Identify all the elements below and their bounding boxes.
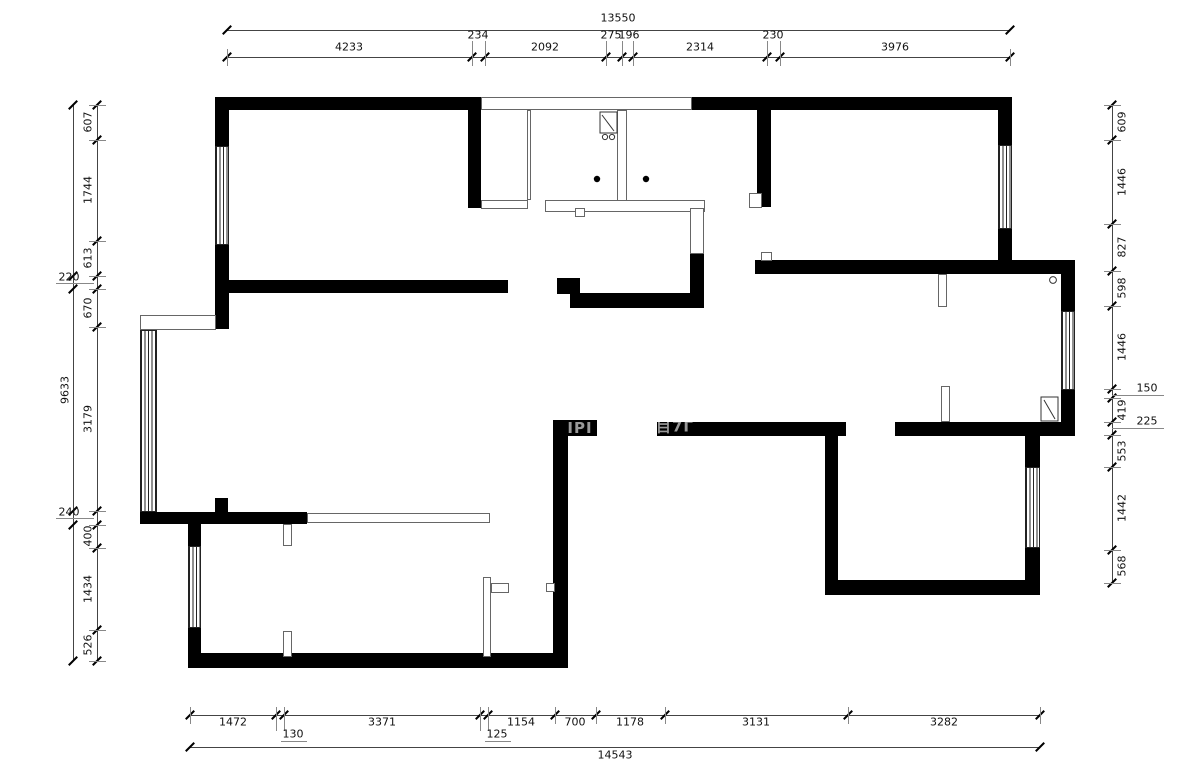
dim-label: 234 [468,30,489,41]
dim-label: 3179 [83,405,94,433]
dim-label: 125 [487,729,508,740]
dim-label: 14543 [598,750,633,761]
dim-leader [485,741,511,742]
dim-label: 2314 [686,42,714,53]
dim-line [1112,105,1113,583]
dim-extension [89,630,106,631]
dim-leader [780,41,781,56]
dim-leader [1112,428,1164,429]
dim-extension [89,289,106,290]
dim-label: 607 [83,112,94,133]
dim-extension [1104,306,1121,307]
dim-leader [622,41,623,56]
dim-extension [848,707,849,724]
watermark-fragment: 目7Γ [656,416,694,437]
dim-label: 1178 [616,717,644,728]
dim-label: 1446 [1117,168,1128,196]
dim-label: 220 [59,272,80,283]
dim-label: 1434 [83,575,94,603]
dim-extension [1104,271,1121,272]
dim-leader [472,41,473,56]
dim-leader [1112,395,1164,396]
dim-label: 225 [1137,416,1158,427]
door-stop-circle [1050,277,1057,284]
dim-extension [89,105,106,106]
dim-label: 130 [283,729,304,740]
dim-extension [1104,583,1121,584]
dim-extension [1104,389,1121,390]
dim-label: 609 [1117,112,1128,133]
dim-extension [89,140,106,141]
dim-extension [89,327,106,328]
dim-extension [227,49,228,66]
dim-label: 553 [1117,441,1128,462]
dim-extension [596,707,597,724]
dim-label: 150 [1137,383,1158,394]
dim-label: 613 [83,248,94,269]
dim-extension [89,548,106,549]
dim-label: 3131 [742,717,770,728]
floor-plan-sheet: IPI 目7Γ 13550 4233 234 2092 275 196 2314… [0,0,1200,771]
dim-line [97,105,98,661]
watermark-fragment: IPI [567,419,592,437]
dim-label: 670 [83,298,94,319]
dim-label: 1744 [83,176,94,204]
dim-label: 1154 [507,717,535,728]
dot-marker [594,176,600,182]
dim-extension [1104,435,1121,436]
dim-line [190,715,1040,716]
dim-label: 419 [1117,400,1128,421]
dim-label: 2092 [531,42,559,53]
dim-line [73,105,74,661]
dim-leader [485,41,486,56]
hob-burner [609,134,614,139]
dot-marker [643,176,649,182]
dim-extension [555,707,556,724]
dim-extension [89,511,106,512]
dim-label: 827 [1117,237,1128,258]
dim-label: 1472 [219,717,247,728]
dim-label: 598 [1117,278,1128,299]
dim-label: 1446 [1117,333,1128,361]
dim-extension [1104,550,1121,551]
dim-extension [89,661,106,662]
dim-extension [1010,49,1011,66]
dim-label: 400 [83,526,94,547]
dim-label: 240 [59,507,80,518]
dim-extension [1104,467,1121,468]
dim-extension [190,707,191,724]
dim-label: 526 [83,635,94,656]
dim-extension [1104,422,1121,423]
dim-label: 568 [1117,556,1128,577]
dim-label: 3976 [881,42,909,53]
dim-label: 4233 [335,42,363,53]
dim-label: 230 [763,30,784,41]
hob-burner [602,134,607,139]
dim-leader [281,741,307,742]
dim-extension [1040,707,1041,724]
dim-extension [665,707,666,724]
dim-leader [480,716,481,731]
dim-label: 3371 [368,717,396,728]
dim-label: 196 [619,30,640,41]
dim-label: 700 [565,717,586,728]
dim-extension [1104,140,1121,141]
dim-label: 13550 [601,13,636,24]
dim-leader [633,41,634,56]
dim-leader [767,41,768,56]
dim-label: 1442 [1117,494,1128,522]
dim-leader [606,41,607,56]
dim-extension [1104,224,1121,225]
dim-extension [89,276,106,277]
dim-leader [276,716,277,731]
dim-label: 3282 [930,717,958,728]
dim-extension [1104,105,1121,106]
fixtures-layer [0,0,1200,771]
dim-label: 9633 [60,376,71,404]
dim-extension [89,241,106,242]
